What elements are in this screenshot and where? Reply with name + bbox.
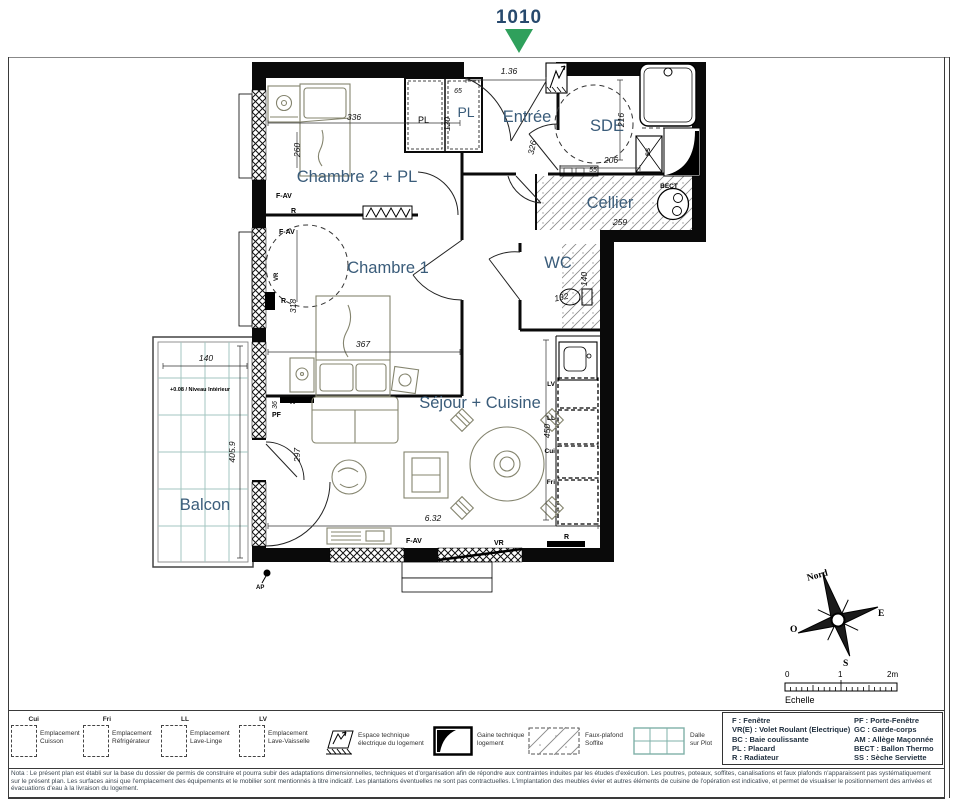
abbreviations-column-1: F : Fenêtre VR(E) : Volet Roulant (Elect…	[732, 716, 854, 764]
dining-table	[470, 427, 544, 501]
legend-refrigerateur-abbr: Fri	[103, 716, 111, 723]
dim-sde-height: 216	[616, 113, 626, 128]
dim-sejour-height: 297	[292, 448, 302, 463]
legend-text-line: Dalle	[690, 732, 705, 739]
faux-plafond-label: Faux-plafond Soffite	[585, 732, 623, 747]
dim-ch1-width: 367	[356, 339, 370, 349]
legend-lave-vaisselle-abbr: LV	[259, 716, 267, 723]
legend-cuisson-label: Emplacement Cuisson	[40, 730, 80, 745]
legend-lave-vaisselle-box: LV	[239, 725, 265, 757]
label-cellier: Cellier	[587, 194, 634, 212]
legend-refrigerateur-box: Fri	[83, 725, 109, 757]
desk-chambre2	[268, 86, 300, 122]
ann-fav-1: F-AV	[276, 193, 292, 200]
label-chambre1: Chambre 1	[347, 259, 429, 277]
legend-text-line: Soffite	[585, 740, 603, 747]
dining-chair	[541, 497, 564, 520]
legend-lave-linge-abbr: LL	[181, 716, 189, 723]
ann-ss: SS	[646, 148, 652, 156]
abbreviation-entry: BECT : Ballon Thermo	[854, 744, 934, 753]
ann-r-1: R	[291, 208, 296, 215]
abbreviation-entry: VR(E) : Volet Roulant (Electrique)	[732, 725, 854, 734]
ann-r-4: R	[564, 534, 569, 541]
abbreviation-entry: PL : Placard	[732, 744, 854, 753]
legend-cuisson-box: Cui	[11, 725, 37, 757]
label-entree: Entrée	[503, 108, 552, 126]
media-console	[327, 528, 391, 544]
gaine-technique-icon	[433, 726, 473, 756]
scale-two: 2m	[887, 670, 898, 679]
lot-arrow-icon	[505, 29, 533, 53]
legend-text-line: Lave-Linge	[190, 738, 222, 745]
legend-text-line: Espace technique	[358, 732, 410, 739]
floor-plan-drawing: 1010 140 405.9 +0.08 / Niveau Intérieur …	[0, 0, 954, 710]
legend-text-line: Emplacement	[268, 730, 308, 737]
ann-fav-2: F-AV	[279, 229, 295, 236]
gaine-technique-icon	[664, 128, 700, 176]
legend-text-line: logement	[477, 740, 504, 747]
dim-pl-depth: 65	[454, 88, 462, 95]
compass-west-label: O	[790, 625, 797, 635]
compass-rose: Nord E O S	[783, 559, 890, 669]
dalle-sur-plot-label: Dalle sur Plot	[690, 732, 712, 747]
abbreviation-entry: F : Fenêtre	[732, 716, 854, 725]
armchair	[404, 452, 448, 498]
plan-note: Nota : Le présent plan est établi sur la…	[11, 770, 939, 793]
radiator-chambre2-icon	[363, 206, 412, 219]
dim-ch1-height: 318	[288, 299, 298, 313]
legend-text-line: Faux-plafond	[585, 732, 623, 739]
plant	[332, 460, 366, 494]
ann-vr-2: VR	[494, 540, 504, 547]
ann-cui: Cui	[545, 448, 556, 455]
legend-text-line: électrique du logement	[358, 740, 424, 747]
ann-bect: BECT	[660, 183, 678, 190]
dim-balcon-width: 140	[199, 353, 213, 363]
dining-chair	[451, 497, 474, 520]
legend-cuisson-abbr: Cui	[29, 716, 39, 723]
dim-cellier-width: 259	[612, 217, 627, 227]
dim-entree-height: 326	[526, 139, 539, 155]
legend-lave-linge-box: LL	[161, 725, 187, 757]
ann-r-2: R	[281, 298, 286, 305]
scale-zero: 0	[785, 670, 790, 679]
balcony: 140 405.9 +0.08 / Niveau Intérieur Balco…	[153, 337, 253, 567]
lot-number: 1010	[496, 7, 542, 28]
legend-lave-vaisselle-label: Emplacement Lave-Vaisselle	[268, 730, 310, 745]
dim-sejour-width: 6.32	[425, 513, 442, 523]
faux-plafond-icon	[528, 727, 580, 755]
chair-chambre1	[391, 366, 418, 393]
legend-text-line: Emplacement	[190, 730, 230, 737]
scale-bar: 0 1 2m Echelle	[785, 670, 898, 705]
ann-fri: Fri	[547, 479, 556, 486]
abbreviation-entry: R : Radiateur	[732, 753, 854, 762]
radiator-bar-chambre1	[265, 292, 275, 310]
abbreviations-column-2: PF : Porte-Fenêtre GC : Garde-corps AM :…	[854, 716, 934, 764]
abbreviation-entry: PF : Porte-Fenêtre	[854, 716, 934, 725]
legend-text-line: Gaine technique	[477, 732, 524, 739]
floor-plan-page: 1010 140 405.9 +0.08 / Niveau Intérieur …	[0, 0, 954, 800]
gaine-technique-label: Gaine technique logement	[477, 732, 524, 747]
dim-ch2-width: 336	[347, 112, 361, 122]
dim-sde-width: 206	[603, 155, 618, 165]
legend-text-line: Lave-Vaisselle	[268, 738, 310, 745]
lot-marker: 1010	[496, 7, 542, 53]
legend-text-line: Réfrigérateur	[112, 738, 150, 745]
abbreviation-entry: BC : Baie coulissante	[732, 735, 854, 744]
legend-text-line: Emplacement	[112, 730, 152, 737]
radiator-bar-sejour-left	[280, 397, 314, 403]
dim-ch2-height: 260	[292, 143, 302, 158]
label-chambre2: Chambre 2 + PL	[297, 168, 418, 186]
label-sejour: Séjour + Cuisine	[419, 394, 541, 412]
legend-text-line: Cuisson	[40, 738, 63, 745]
dim-door-width: 36	[272, 401, 279, 409]
ballon-thermo-icon	[658, 189, 689, 220]
ann-r-3: R	[290, 399, 295, 406]
compass-east-label: E	[878, 609, 884, 619]
attachment-point-marker	[262, 570, 271, 584]
legend-text-line: Emplacement	[40, 730, 80, 737]
legend-lave-linge-label: Emplacement Lave-Linge	[190, 730, 230, 745]
legend-text-line: sur Plot	[690, 740, 712, 747]
bed-single-chambre2	[300, 84, 350, 176]
sofa	[312, 397, 398, 443]
dalle-sur-plot-icon	[633, 727, 685, 755]
kitchen-counter	[556, 336, 600, 526]
ann-ap: AP	[256, 585, 264, 591]
ann-pl-small: PL	[418, 115, 429, 125]
shower-tray	[640, 64, 696, 128]
ann-fav-3: F-AV	[406, 538, 422, 545]
label-balcon: Balcon	[180, 496, 230, 514]
abbreviation-entry: AM : Allège Maçonnée	[854, 735, 934, 744]
dim-kitchen-height: 450	[542, 424, 552, 438]
frame-bottom	[8, 797, 945, 799]
ann-vr-1: VR	[274, 272, 280, 281]
dim-entrance: 1.36	[501, 66, 518, 76]
label-placard: PL	[457, 104, 474, 120]
dim-sde-width2: 55	[589, 167, 597, 174]
electrical-box-icon	[546, 63, 567, 93]
divider-note-top	[8, 768, 945, 769]
dining-chair	[451, 409, 474, 432]
dim-wc-height: 140	[579, 272, 589, 286]
ann-ll: LL	[547, 415, 555, 422]
divider-legend-top	[8, 710, 945, 711]
scale-one: 1	[838, 670, 843, 679]
ann-lv: LV	[547, 381, 555, 388]
label-wc: WC	[544, 254, 572, 272]
radiator-bar-sejour-bottom	[547, 541, 585, 547]
ann-pf: PF	[272, 412, 282, 419]
abbreviation-entry: SS : Sèche Serviette	[854, 753, 934, 762]
nightstand-chambre1	[290, 358, 314, 392]
espace-technique-icon	[325, 727, 355, 755]
balcony-door-opening	[251, 440, 267, 480]
bed-double-chambre1	[316, 296, 390, 396]
dim-balcon-height: 405.9	[227, 441, 237, 463]
scale-caption: Echelle	[785, 695, 815, 705]
compass-south-label: S	[843, 659, 848, 669]
abbreviation-entry: GC : Garde-corps	[854, 725, 934, 734]
abbreviations-panel: F : Fenêtre VR(E) : Volet Roulant (Elect…	[722, 712, 943, 765]
balcony-level-note: +0.08 / Niveau Intérieur	[170, 387, 231, 393]
legend-refrigerateur-label: Emplacement Réfrigérateur	[112, 730, 152, 745]
espace-technique-label: Espace technique électrique du logement	[358, 732, 424, 747]
kitchen-appliance-slots	[558, 378, 598, 524]
dim-pl-width: 120	[442, 117, 452, 131]
